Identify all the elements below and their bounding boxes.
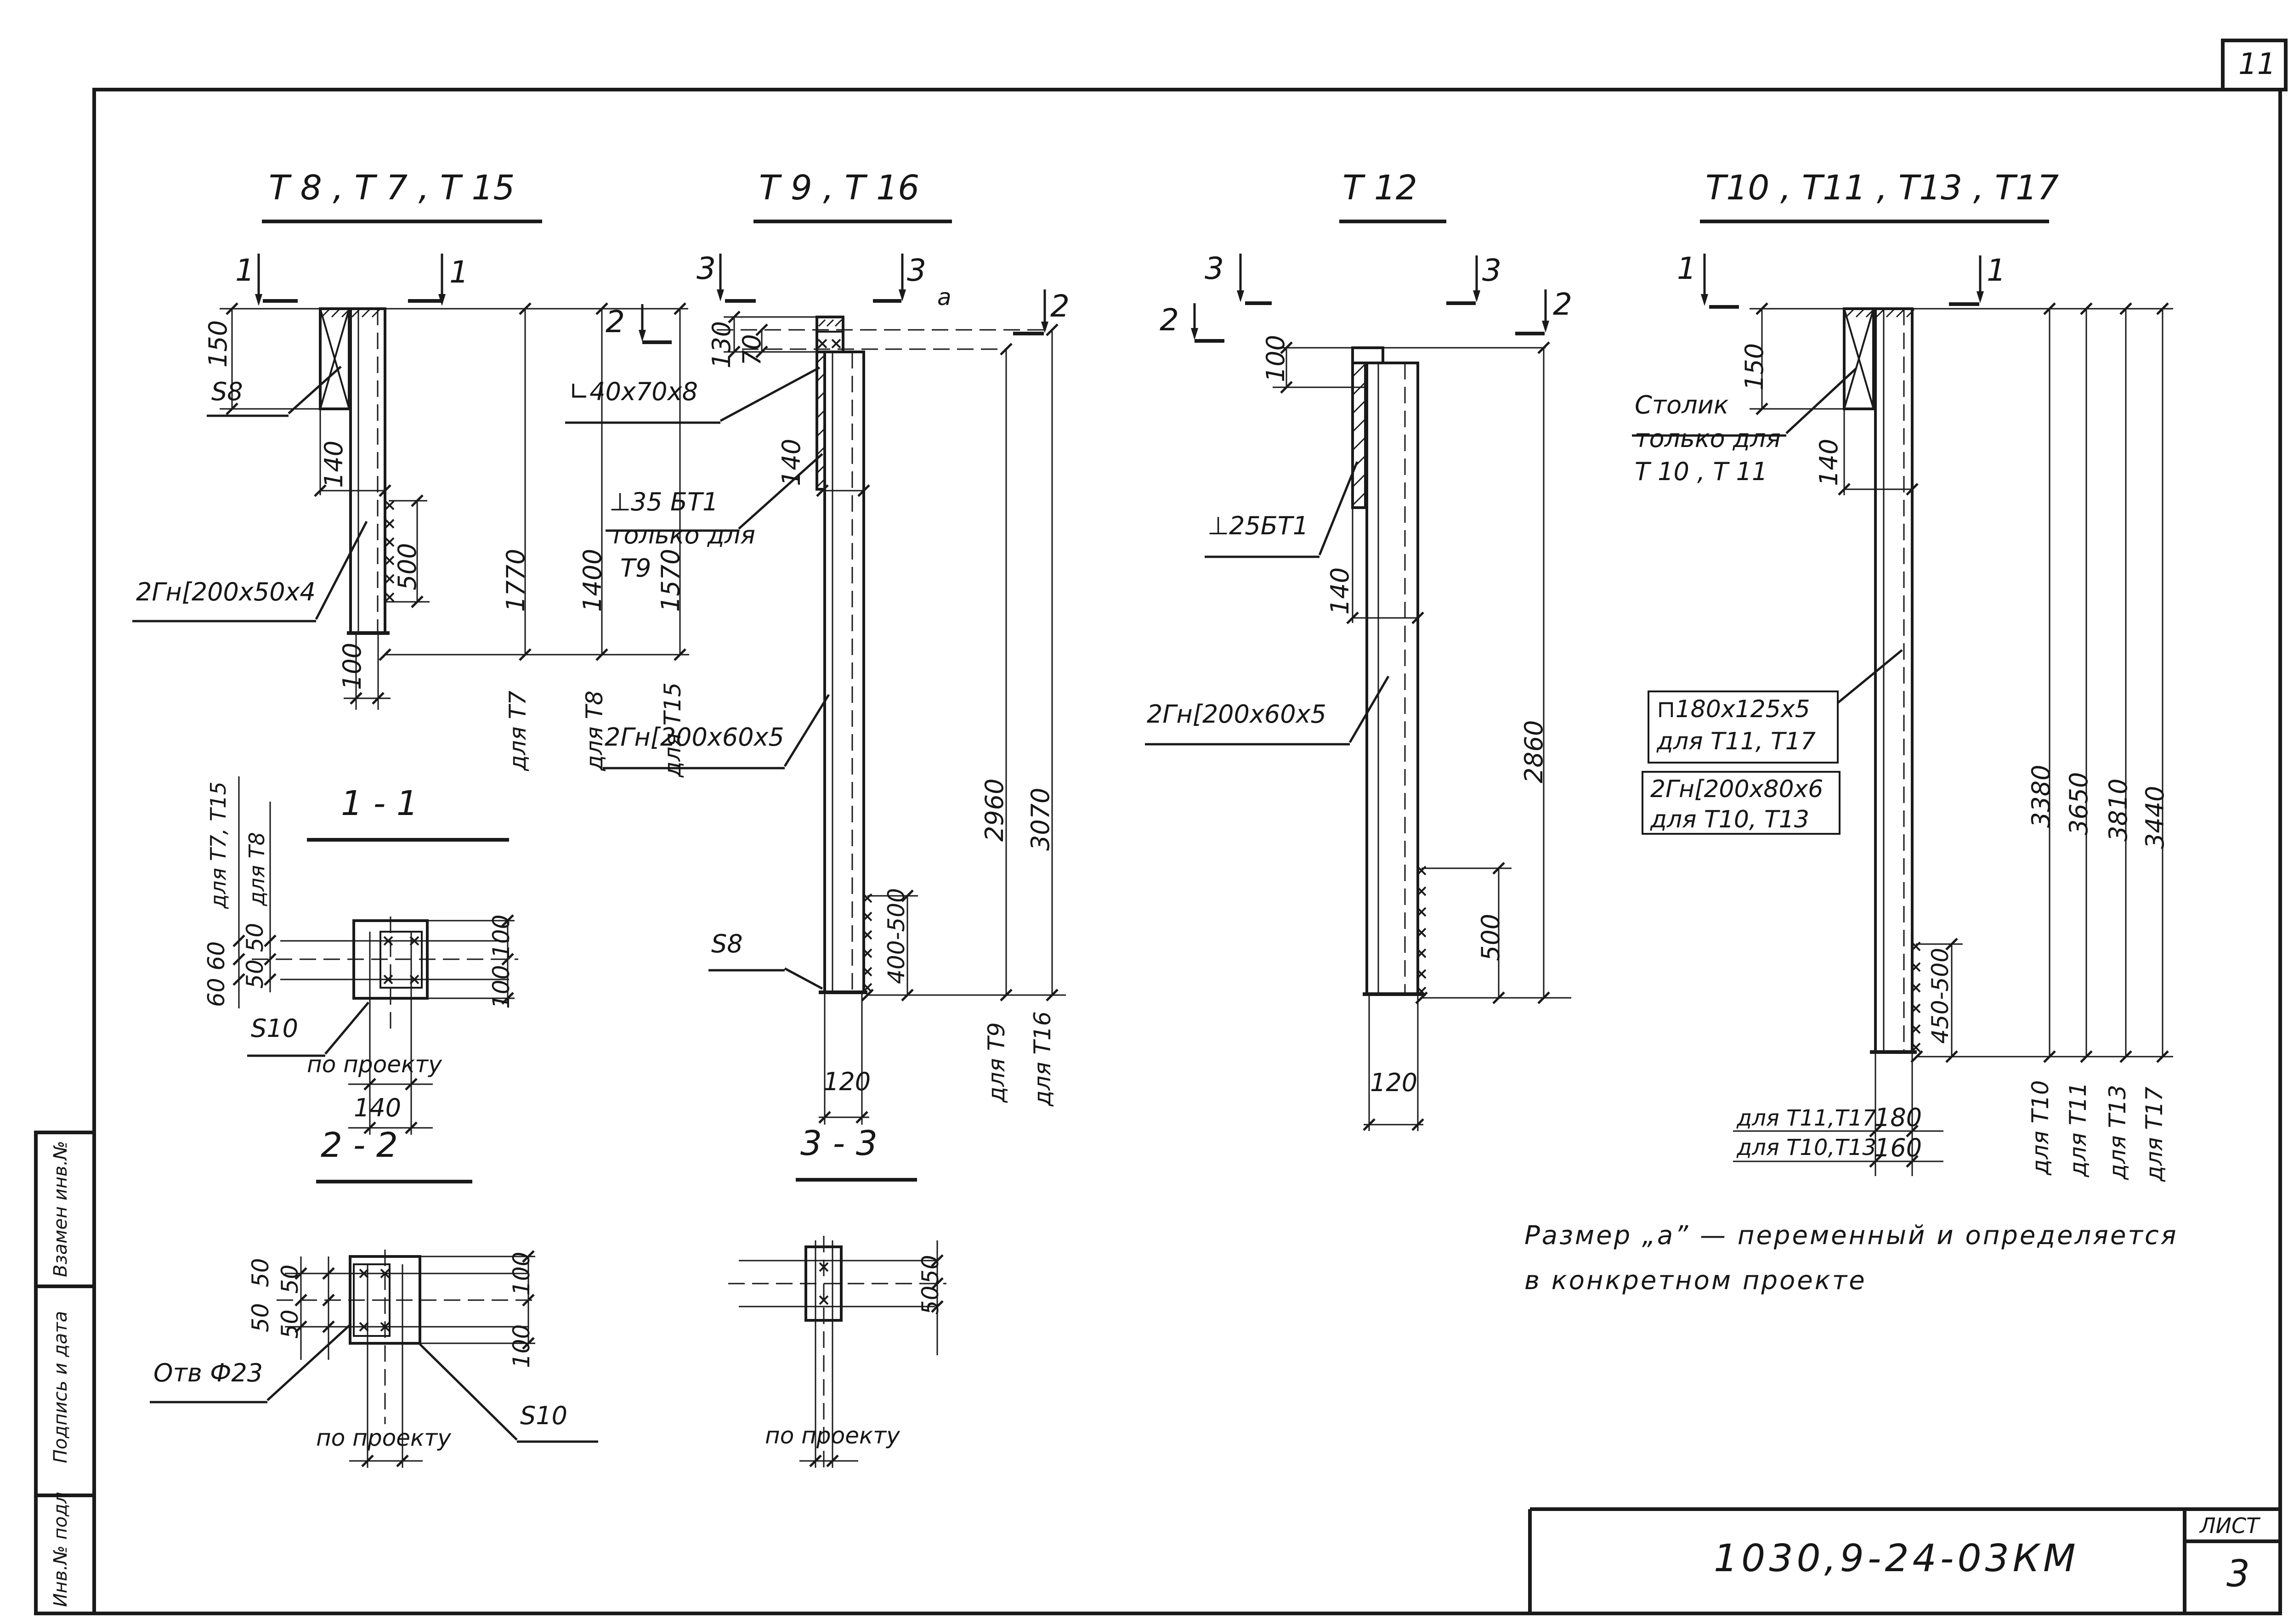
- s33-label-project: по проекту: [765, 1424, 900, 1447]
- g4-section-mark-1-right: 1: [1987, 255, 2006, 286]
- g4-section-mark-1-left: 1: [1677, 254, 1696, 284]
- g2-section-mark-2-right: 2: [1050, 291, 1070, 322]
- g4-label-channel-for: для Т10, Т13: [1650, 808, 1809, 832]
- g4-for-t11: для Т11: [2067, 1082, 2090, 1177]
- s22-label-project: по проекту: [316, 1426, 451, 1449]
- s22-title: 2 - 2: [321, 1128, 398, 1162]
- s33-dim-50-b: 50: [919, 1285, 942, 1315]
- g2-label-t9: Т9: [620, 556, 651, 581]
- s11-dim-100-bot: 100: [490, 965, 513, 1009]
- g1-title: Т 8 , Т 7 , Т 15: [269, 171, 515, 205]
- g2-label-channel: 2Гн[200х60х5: [605, 725, 784, 750]
- g4-table-row1-label: для Т11,Т17: [1737, 1107, 1876, 1129]
- s22-dim-50-b: 50: [278, 1264, 301, 1294]
- g2-title: Т 9 , Т 16: [759, 171, 919, 205]
- g4-label-stolik: Столик: [1635, 393, 1728, 418]
- stamp-sheet-number: 3: [2226, 1556, 2250, 1592]
- g1-dim-1570: 1570: [658, 549, 683, 612]
- g2-label-only-for: только для: [609, 523, 755, 548]
- g4-label-plate: ⊓180х125х5: [1657, 697, 1810, 721]
- g2-dim-2960: 2960: [982, 779, 1007, 842]
- g4-table-row1-value: 180: [1875, 1105, 1922, 1130]
- sidebar-label-podpis: Подпись и дата: [51, 1311, 70, 1463]
- s22-dim-100-top: 100: [510, 1252, 533, 1296]
- g3-dim-2860: 2860: [1522, 720, 1546, 783]
- s11-label-s10: S10: [251, 1016, 298, 1041]
- sidebar-label-vzamen: Взамен инв.№: [51, 1141, 70, 1277]
- g4-table-row2-value: 160: [1875, 1136, 1922, 1160]
- g1-dim-500: 500: [395, 543, 420, 590]
- g2-dim-70: 70: [740, 334, 765, 366]
- g1-dim-140: 140: [322, 441, 346, 488]
- g4-dim-140: 140: [1817, 439, 1841, 486]
- note-line2: в конкретном проекте: [1524, 1268, 1867, 1294]
- g2-dim-400-500: 400-500: [885, 888, 908, 984]
- note-line1: Размер „а” — переменный и определяется: [1524, 1223, 2178, 1249]
- s11-dim-100-top: 100: [490, 915, 513, 958]
- sidebar-label-inv: Инв.№ подл: [51, 1492, 70, 1607]
- g1-dim-150: 150: [206, 320, 231, 368]
- g1-section-mark-1-left: 1: [235, 255, 255, 286]
- g4-dim-3650: 3650: [2067, 772, 2091, 835]
- g4-dim-3440: 3440: [2143, 786, 2168, 849]
- g3-label-channel: 2Гн[200х60х5: [1147, 702, 1326, 727]
- g3-section-mark-3-right: 3: [1482, 255, 1501, 286]
- g3-section-mark-2-right: 2: [1553, 289, 1572, 320]
- stamp-sheet-label: ЛИСТ: [2200, 1515, 2259, 1536]
- s22-dim-50-c: 50: [249, 1303, 272, 1332]
- s22-dim-50-d: 50: [278, 1309, 301, 1339]
- s22-label-s10: S10: [520, 1403, 567, 1428]
- g4-label-t10-t11: Т 10 , Т 11: [1635, 459, 1767, 484]
- g2-label-angle: ∟40х70х8: [569, 379, 698, 404]
- g1-label-channel: 2Гн[200х50х4: [136, 580, 316, 605]
- g2-section-mark-2-left: 2: [606, 307, 625, 337]
- g1-dim-1770: 1770: [504, 549, 528, 612]
- g1-for-t7: для Т7: [506, 690, 529, 771]
- g1-dim-1400: 1400: [580, 549, 605, 612]
- s11-dim-140: 140: [354, 1096, 401, 1120]
- g4-for-t13: для Т13: [2106, 1085, 2129, 1180]
- g2-dim-a: а: [937, 286, 951, 309]
- g4-dim-150: 150: [1742, 343, 1767, 390]
- s22-label-hole: Отв Ф23: [153, 1361, 263, 1386]
- g3-title: Т 12: [1342, 171, 1417, 205]
- g3-dim-120: 120: [1370, 1070, 1417, 1095]
- g1-section-mark-1-right: 1: [449, 257, 469, 288]
- g1-for-t8: для Т8: [583, 690, 606, 771]
- g4-table-row2-label: для Т10,Т13: [1737, 1137, 1876, 1159]
- s11-for-t7-t15: для Т7, Т15: [208, 781, 229, 909]
- g2-label-s8: S8: [711, 932, 743, 956]
- page-number: 11: [2238, 50, 2276, 79]
- stamp-document-code: 1030,9-24-03КМ: [1714, 1540, 2079, 1578]
- g2-dim-3070: 3070: [1028, 788, 1053, 851]
- g4-for-t10: для Т10: [2029, 1080, 2052, 1175]
- g1-dim-100: 100: [340, 643, 365, 690]
- s11-title: 1 - 1: [341, 787, 418, 820]
- drawing-sheet: 11 Взамен инв.№ Подпись и дата Инв.№ под…: [0, 0, 2288, 1624]
- g4-dim-450-500: 450-500: [1929, 948, 1952, 1044]
- s33-dim-50-a: 50: [919, 1255, 942, 1284]
- g2-for-t9: для Т9: [985, 1022, 1008, 1103]
- s11-label-project: по проекту: [307, 1053, 442, 1076]
- g2-label-bt35: ⊥35 БТ1: [609, 490, 718, 515]
- s22-dim-100-bot: 100: [510, 1324, 533, 1368]
- g4-title: Т10 , Т11 , Т13 , Т17: [1705, 171, 2059, 205]
- g3-dim-140: 140: [1328, 567, 1353, 615]
- g2-dim-130: 130: [709, 321, 734, 368]
- g2-section-mark-3-right: 3: [907, 255, 926, 286]
- s11-dim-50-50: 50 50: [244, 923, 266, 989]
- g2-dim-140: 140: [779, 439, 804, 486]
- g2-for-t16: для Т16: [1031, 1011, 1054, 1106]
- g4-label-only-for: только для: [1635, 426, 1781, 451]
- g4-for-t17: для Т17: [2143, 1086, 2166, 1182]
- g4-label-plate-for: для Т11, Т17: [1657, 730, 1816, 753]
- g4-dim-3810: 3810: [2106, 779, 2131, 842]
- g4-label-channel: 2Гн[200х80х6: [1650, 777, 1823, 801]
- g3-dim-100: 100: [1263, 335, 1288, 382]
- g2-dim-120: 120: [823, 1069, 871, 1094]
- g3-dim-500: 500: [1478, 914, 1503, 961]
- g3-section-mark-3-left: 3: [1205, 254, 1224, 284]
- s11-for-t8: для Т8: [246, 832, 267, 906]
- g2-section-mark-3-left: 3: [697, 254, 716, 284]
- g3-section-mark-2-left: 2: [1160, 305, 1179, 335]
- g4-dim-3380: 3380: [2029, 765, 2054, 828]
- s11-dim-60-60: 60 60: [205, 941, 228, 1007]
- g1-label-s8: S8: [211, 379, 243, 404]
- g3-label-bt25: ⊥25БТ1: [1207, 514, 1308, 538]
- s33-title: 3 - 3: [800, 1126, 878, 1160]
- s22-dim-50-a: 50: [249, 1258, 272, 1287]
